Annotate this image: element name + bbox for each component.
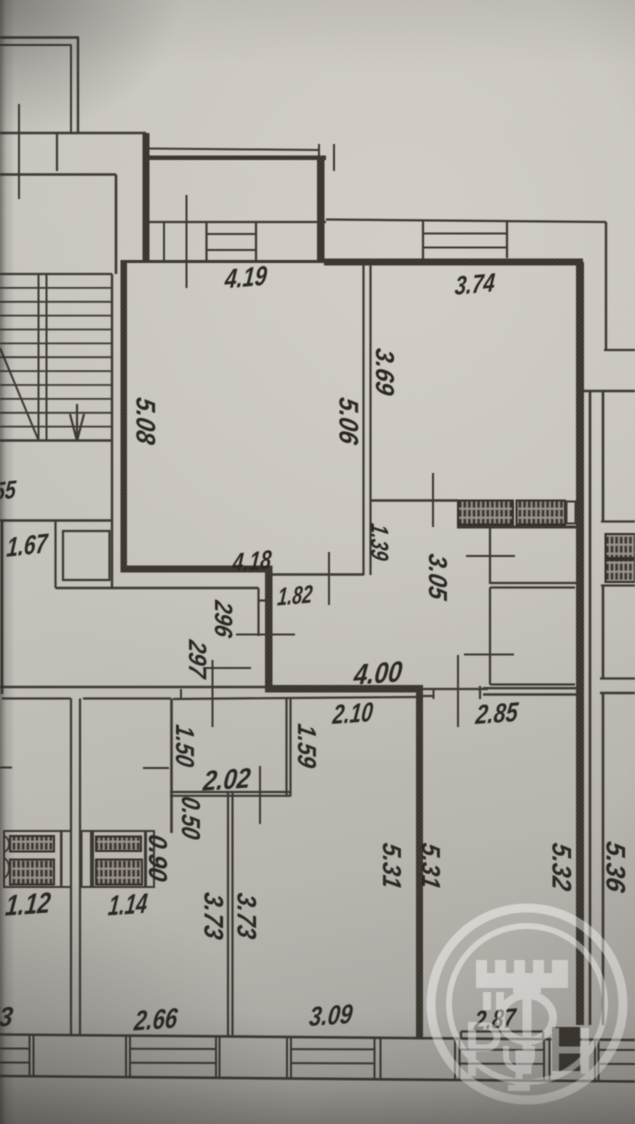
- svg-text:5.08: 5.08: [131, 395, 162, 447]
- svg-text:0.90: 0.90: [143, 832, 173, 884]
- svg-text:0.50: 0.50: [176, 794, 206, 842]
- svg-text:1.14: 1.14: [107, 887, 149, 922]
- svg-text:4.19: 4.19: [223, 260, 268, 295]
- svg-text:1.39: 1.39: [365, 522, 393, 563]
- svg-text:5.32: 5.32: [547, 841, 578, 893]
- svg-text:5.06: 5.06: [334, 395, 365, 447]
- svg-text:1.67: 1.67: [6, 527, 50, 563]
- svg-text:53: 53: [0, 1000, 15, 1033]
- svg-text:1.50: 1.50: [170, 723, 200, 770]
- svg-text:3.74: 3.74: [454, 267, 497, 301]
- svg-text:4.18: 4.18: [230, 544, 273, 578]
- svg-text:296: 296: [209, 598, 237, 641]
- svg-text:3.09: 3.09: [308, 998, 354, 1032]
- svg-text:55: 55: [0, 476, 18, 507]
- svg-text:1.12: 1.12: [4, 887, 52, 922]
- svg-text:2.85: 2.85: [474, 696, 521, 730]
- svg-text:1.82: 1.82: [276, 580, 313, 611]
- svg-text:297: 297: [183, 637, 211, 681]
- svg-text:4.00: 4.00: [352, 656, 404, 691]
- svg-text:2.10: 2.10: [331, 696, 375, 730]
- svg-text:5.36: 5.36: [601, 839, 632, 895]
- svg-text:2.02: 2.02: [201, 761, 252, 796]
- svg-text:3.73: 3.73: [199, 890, 230, 941]
- svg-text:3.69: 3.69: [370, 346, 400, 398]
- svg-text:1.59: 1.59: [292, 722, 322, 771]
- svg-text:5.31: 5.31: [377, 841, 407, 891]
- svg-text:3.05: 3.05: [423, 552, 453, 603]
- svg-text:2.66: 2.66: [132, 1001, 179, 1036]
- svg-text:5.31: 5.31: [416, 841, 446, 891]
- svg-text:3.73: 3.73: [232, 891, 263, 941]
